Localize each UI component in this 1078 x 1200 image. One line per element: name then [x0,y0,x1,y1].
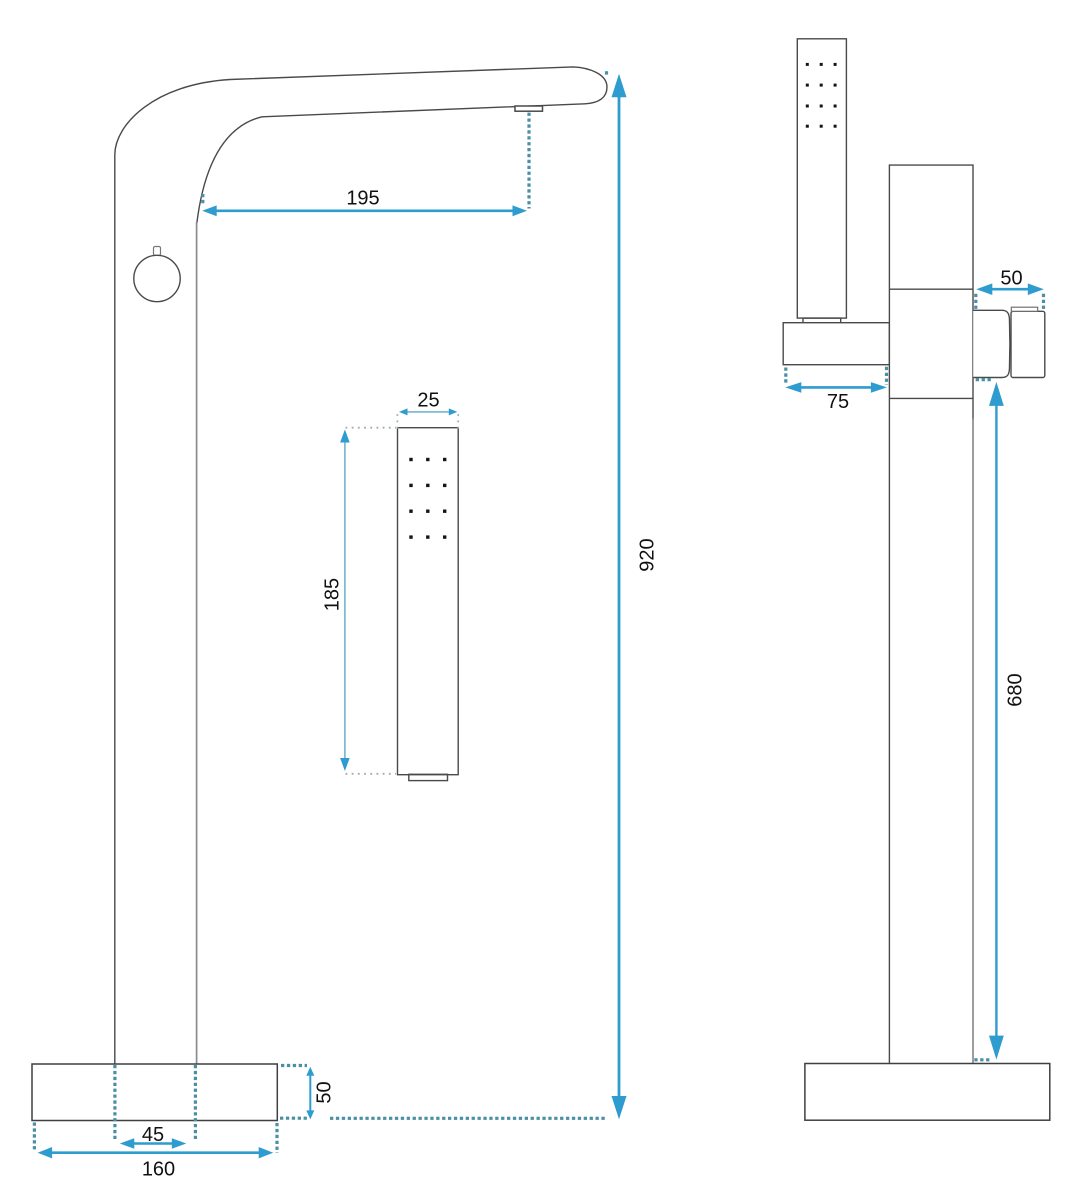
svg-text:195: 195 [346,188,379,210]
svg-text:50: 50 [314,1081,336,1103]
svg-text:920: 920 [637,538,659,571]
svg-text:25: 25 [417,390,439,412]
svg-text:50: 50 [1000,268,1022,290]
svg-text:45: 45 [142,1124,164,1146]
svg-text:185: 185 [322,578,344,611]
svg-text:160: 160 [142,1158,175,1180]
svg-text:75: 75 [827,391,849,413]
svg-text:680: 680 [1005,673,1027,706]
